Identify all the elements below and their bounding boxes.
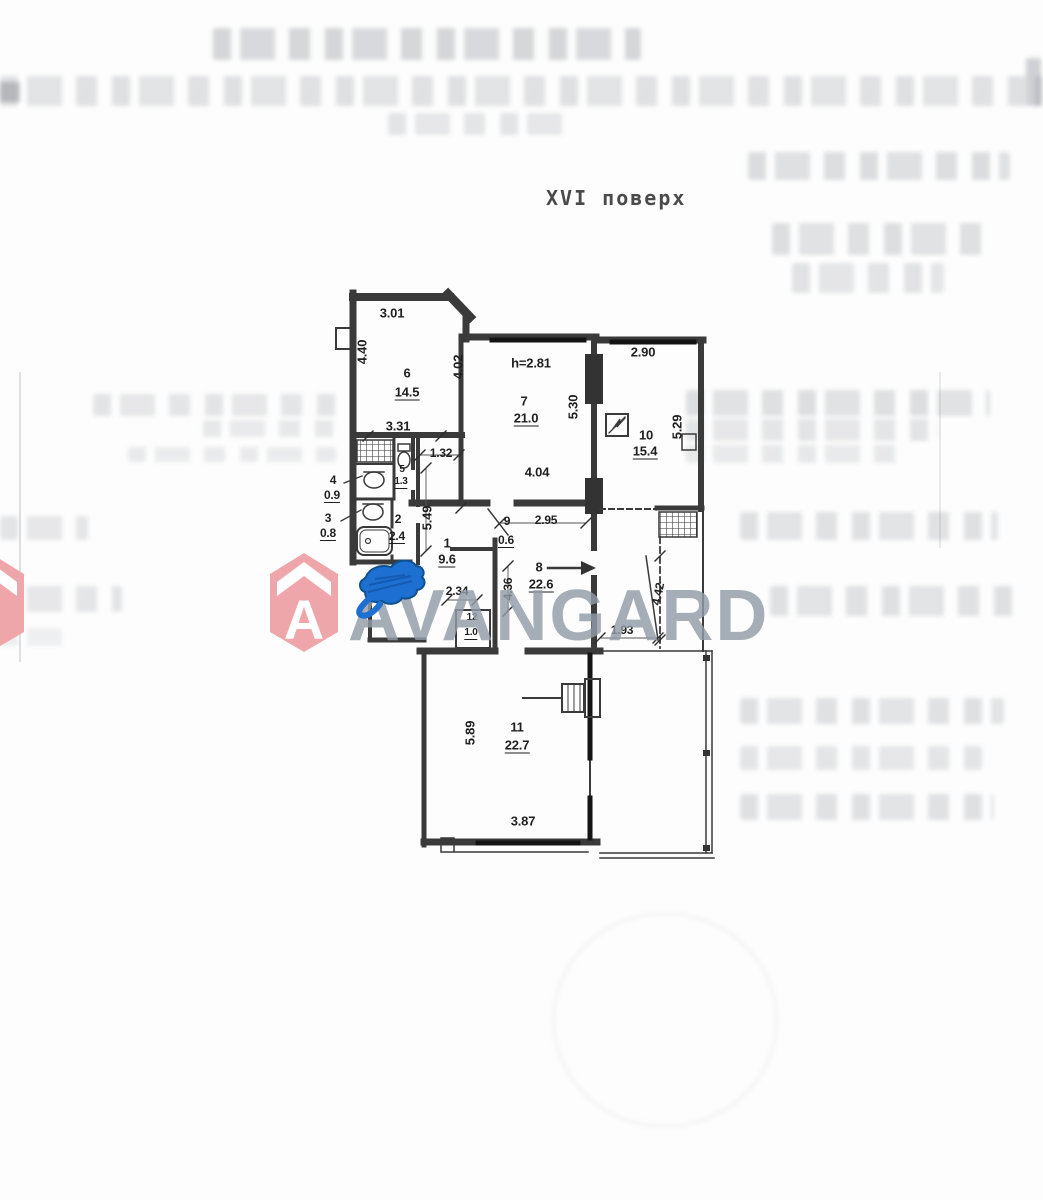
blue-scribble <box>0 0 1043 1200</box>
scanned-document-page: XVI поверх <box>0 0 1043 1200</box>
